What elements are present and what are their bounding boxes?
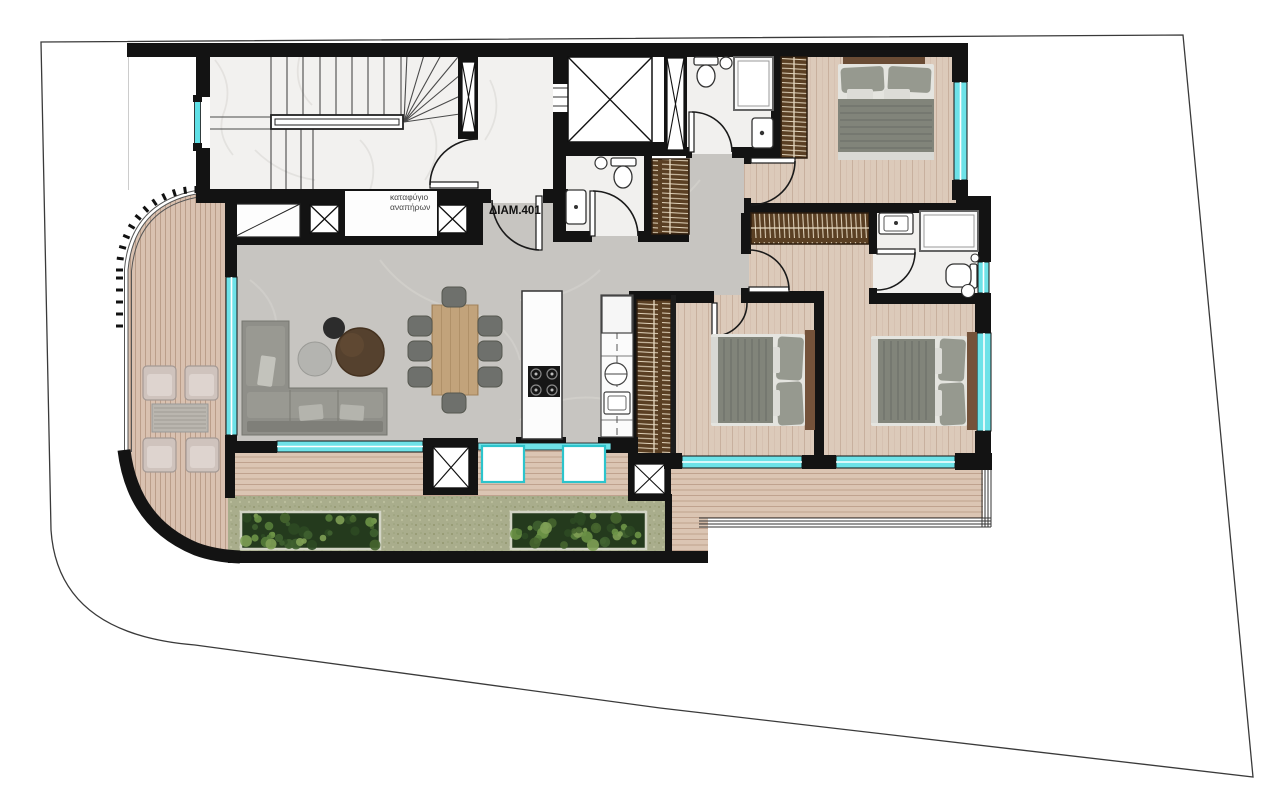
svg-text:ΔΙΑΜ.401: ΔΙΑΜ.401 xyxy=(489,205,541,217)
svg-text:αναπήρων: αναπήρων xyxy=(390,202,430,212)
svg-text:καταφύγιο: καταφύγιο xyxy=(390,192,429,202)
